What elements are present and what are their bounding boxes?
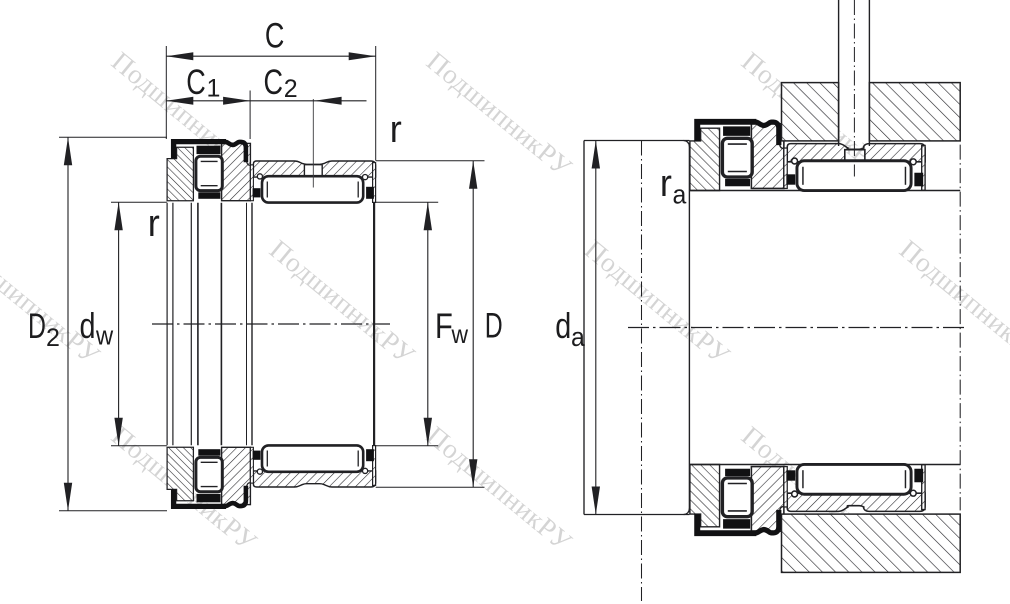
svg-text:1: 1: [207, 75, 221, 103]
svg-text:2: 2: [46, 324, 60, 352]
svg-text:w: w: [451, 321, 469, 350]
svg-text:a: a: [571, 323, 585, 352]
svg-text:C: C: [264, 61, 283, 102]
svg-text:d: d: [555, 305, 571, 346]
svg-text:D: D: [485, 306, 503, 345]
svg-text:D: D: [28, 307, 46, 346]
svg-text:r: r: [660, 161, 672, 204]
svg-text:C: C: [265, 15, 284, 56]
svg-text:F: F: [435, 306, 453, 345]
svg-text:C: C: [186, 61, 205, 102]
svg-text:w: w: [95, 321, 114, 351]
svg-text:d: d: [80, 305, 96, 346]
svg-text:r: r: [148, 201, 160, 244]
svg-text:2: 2: [284, 75, 298, 103]
svg-text:a: a: [673, 181, 687, 210]
svg-text:r: r: [390, 107, 402, 150]
